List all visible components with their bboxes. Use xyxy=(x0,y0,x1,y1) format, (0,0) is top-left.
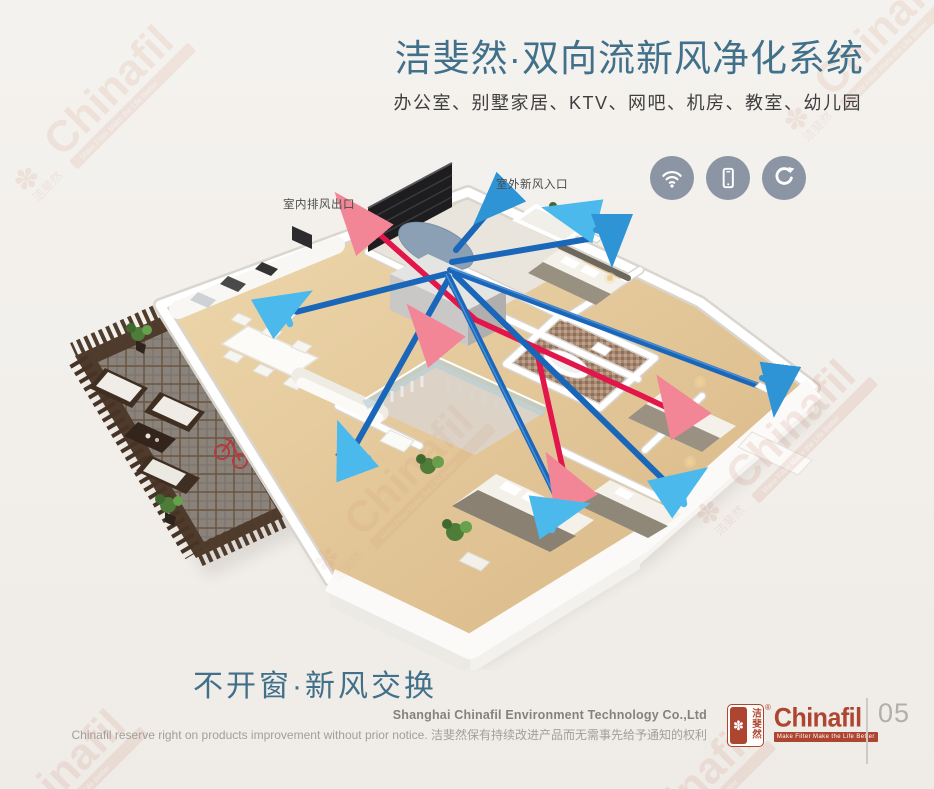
exhaust-outlet-label: 室内排风出口 xyxy=(283,197,355,211)
logo-mark: ✽ 洁斐然 xyxy=(727,704,764,747)
company-name: Shanghai Chinafil Environment Technology… xyxy=(72,708,708,722)
apartment-structure xyxy=(160,163,814,670)
registered-mark: ® xyxy=(765,704,771,712)
feature-icons xyxy=(650,156,806,200)
header: 洁斐然·双向流新风净化系统 办公室、别墅家居、KTV、网吧、机房、教室、幼儿园 xyxy=(393,38,864,115)
page-title: 洁斐然·双向流新风净化系统 xyxy=(393,38,864,81)
chinafil-logo: ✽ 洁斐然 ® Chinafil Make Filter Make the Li… xyxy=(727,704,878,747)
legal-notice: Chinafil reserve right on products impro… xyxy=(72,726,708,743)
wifi-icon xyxy=(650,156,694,200)
tagline: 不开窗·新风交换 xyxy=(193,661,437,705)
logo-chinese-name: 洁斐然 xyxy=(749,707,761,744)
fresh-air-inlet-label: 室外新风入口 xyxy=(496,177,568,191)
smartphone-icon xyxy=(706,156,750,200)
floor-plan-illustration: 室内排风出口 室外新风入口 xyxy=(0,150,934,670)
page-number-divider xyxy=(866,698,868,764)
page-number: 05 xyxy=(878,698,910,729)
logo-tagline: Make Filter Make the Life Better xyxy=(774,732,878,742)
brochure-page: 室内排风出口 室外新风入口 ✽ 洁斐然 Chinafil Make Filter… xyxy=(0,0,934,789)
logo-word: Chinafil Make Filter Make the Life Bette… xyxy=(774,704,878,742)
logo-wordmark: Chinafil xyxy=(774,704,878,732)
footer-text: Shanghai Chinafil Environment Technology… xyxy=(72,708,708,743)
page-subtitle: 办公室、别墅家居、KTV、网吧、机房、教室、幼儿园 xyxy=(393,89,862,115)
flower-icon: ✽ xyxy=(730,707,747,744)
refresh-icon xyxy=(762,156,806,200)
